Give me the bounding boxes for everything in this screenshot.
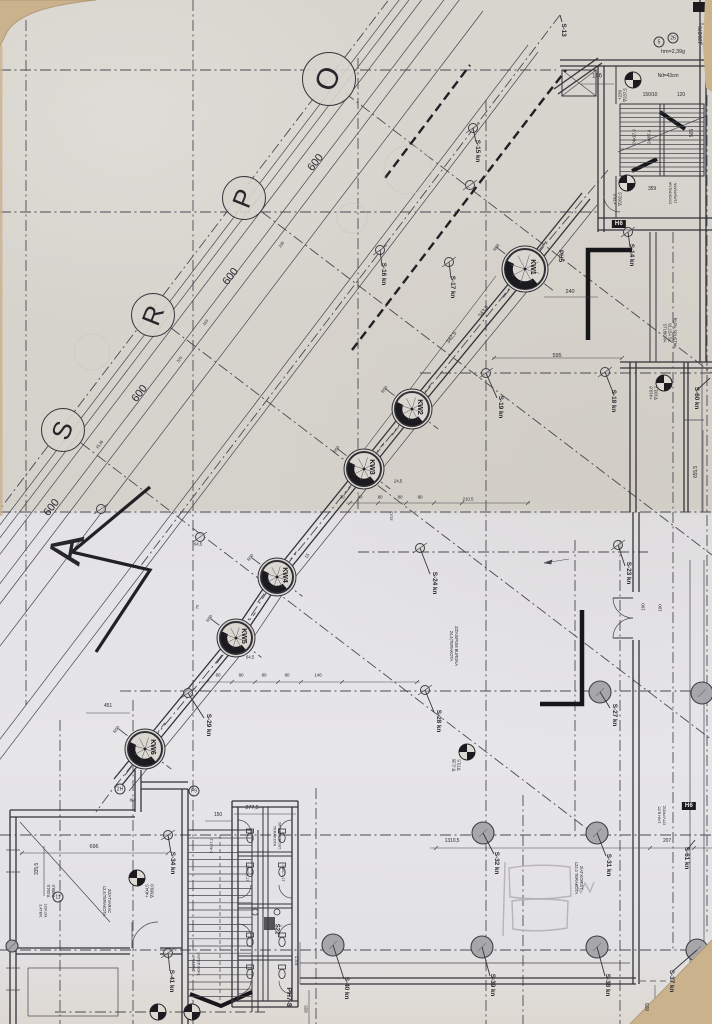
leader-line: [425, 690, 434, 712]
section-line: [72, 65, 566, 652]
erased-marks: [74, 146, 432, 370]
sink-fixture: [252, 909, 258, 915]
svg-text:KW4: KW4: [281, 567, 288, 583]
leader-line: [486, 373, 497, 398]
leader-line: [188, 693, 204, 718]
wc-fixture: [279, 829, 286, 843]
floor-plan-sheet: KW1KW2KW3KW4KW5KW6 600600600600146150/10…: [0, 0, 712, 1024]
leader-line: [605, 372, 614, 395]
leader-lines: [168, 15, 710, 979]
level-marker: [129, 870, 145, 886]
survey-columns: [6, 681, 712, 961]
column-KW3: KW3: [338, 443, 390, 495]
lower-left-building: [6, 770, 258, 1024]
level-markers: [129, 72, 697, 1020]
wc-fixture: [279, 965, 286, 979]
wc-fixture: [279, 863, 286, 877]
level-marker: [459, 744, 475, 760]
toilet-block: [232, 801, 298, 1007]
svg-text:KW5: KW5: [240, 628, 247, 644]
svg-text:KW1: KW1: [529, 259, 536, 275]
svg-text:KW3: KW3: [368, 459, 375, 475]
leader-line: [697, 378, 710, 390]
svg-text:KW6: KW6: [149, 739, 156, 755]
column-KW2: KW2: [386, 383, 438, 435]
dimension-lines: [20, 84, 712, 1024]
pencil-sketch: [503, 862, 594, 936]
level-marker: [619, 175, 635, 191]
highlight-walls: [540, 250, 632, 704]
survey-column: [691, 682, 712, 704]
blueprint-linework: KW1KW2KW3KW4KW5KW6: [0, 0, 712, 1024]
level-marker: [150, 1004, 166, 1020]
sink-fixture: [274, 909, 280, 915]
wc-fixture: [279, 933, 286, 947]
level-marker: [625, 72, 641, 88]
level-marker: [184, 1004, 200, 1020]
svg-text:KW2: KW2: [416, 399, 423, 415]
level-marker: [656, 375, 672, 391]
column-KW6: KW6: [119, 723, 171, 775]
leader-line: [560, 15, 562, 22]
grid-nodes: [94, 123, 635, 958]
grid-lines: [0, 0, 712, 1024]
